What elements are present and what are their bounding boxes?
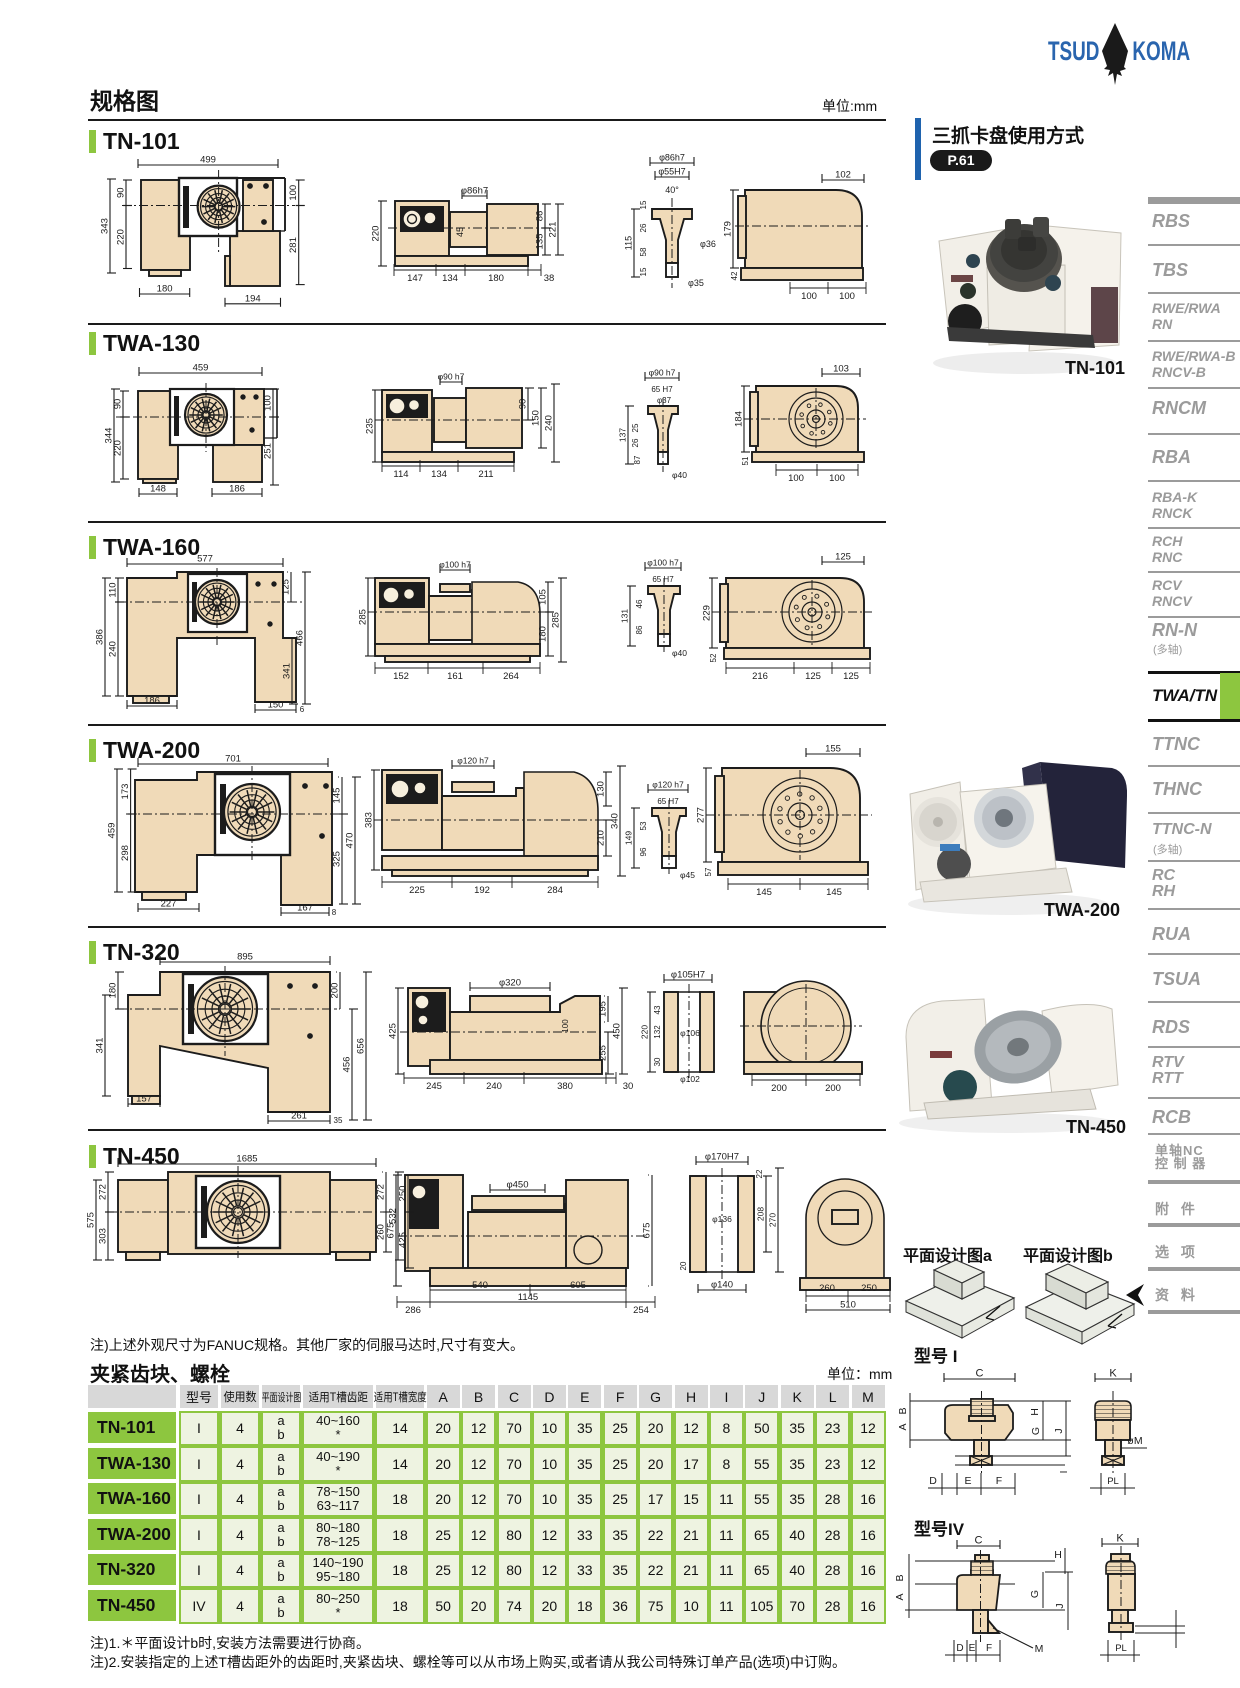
svg-text:261: 261 (291, 1111, 307, 1122)
svg-text:100: 100 (839, 291, 855, 302)
svg-text:PL: PL (1115, 1643, 1127, 1654)
svg-text:137: 137 (618, 428, 628, 442)
svg-text:φ90 h7: φ90 h7 (438, 372, 465, 382)
svg-text:90: 90 (113, 399, 124, 410)
svg-text:C: C (976, 1368, 984, 1380)
svg-text:57: 57 (704, 867, 713, 876)
svg-text:184: 184 (734, 411, 745, 427)
svg-text:38: 38 (544, 273, 555, 284)
svg-text:15: 15 (639, 200, 648, 209)
svg-text:277: 277 (696, 807, 707, 823)
svg-text:675: 675 (642, 1223, 653, 1239)
svg-text:A: A (895, 1593, 906, 1600)
svg-text:86: 86 (535, 211, 546, 222)
svg-text:φ140: φ140 (711, 1280, 733, 1291)
svg-text:895: 895 (237, 952, 253, 963)
svg-text:180: 180 (157, 284, 173, 295)
svg-text:110: 110 (108, 582, 119, 597)
svg-text:343: 343 (100, 218, 111, 234)
svg-text:F: F (986, 1643, 992, 1654)
svg-text:1685: 1685 (236, 1154, 257, 1165)
svg-text:194: 194 (245, 293, 261, 304)
svg-text:150: 150 (268, 700, 284, 711)
svg-text:D: D (929, 1475, 937, 1487)
svg-text:285: 285 (358, 609, 369, 625)
svg-text:281: 281 (288, 237, 299, 253)
svg-text:220: 220 (640, 1025, 650, 1039)
svg-text:605: 605 (570, 1280, 586, 1291)
svg-text:250: 250 (861, 1283, 877, 1294)
svg-text:220: 220 (113, 440, 124, 456)
svg-text:115: 115 (624, 236, 634, 250)
svg-text:φ37: φ37 (657, 396, 672, 405)
svg-text:240: 240 (544, 415, 555, 431)
svg-text:105: 105 (538, 589, 549, 605)
svg-text:H: H (1054, 1549, 1062, 1561)
svg-text:φ35: φ35 (688, 278, 704, 288)
svg-text:φ170H7: φ170H7 (705, 1152, 739, 1163)
svg-text:254: 254 (633, 1305, 649, 1316)
svg-text:130: 130 (596, 781, 607, 797)
svg-text:100: 100 (788, 473, 804, 484)
svg-text:216: 216 (752, 671, 768, 682)
svg-text:383: 383 (364, 812, 375, 828)
svg-text:167: 167 (297, 903, 313, 914)
svg-text:341: 341 (95, 1038, 106, 1054)
svg-text:φ55H7: φ55H7 (658, 167, 685, 177)
svg-text:148: 148 (150, 484, 166, 495)
svg-text:35: 35 (334, 1116, 343, 1125)
svg-text:I: I (1059, 1471, 1070, 1474)
svg-text:58: 58 (639, 247, 648, 256)
svg-text:456: 456 (342, 1057, 353, 1073)
svg-text:245: 245 (426, 1081, 442, 1092)
svg-text:220: 220 (371, 226, 382, 242)
svg-text:135: 135 (535, 234, 546, 250)
svg-text:K: K (1116, 1533, 1124, 1545)
svg-text:A: A (897, 1423, 909, 1430)
svg-text:240: 240 (486, 1081, 502, 1092)
svg-text:φ40: φ40 (672, 648, 687, 658)
svg-text:192: 192 (474, 885, 490, 896)
svg-text:114: 114 (393, 469, 408, 480)
svg-text:180: 180 (488, 273, 504, 284)
svg-text:195: 195 (598, 1001, 609, 1017)
svg-text:M: M (1035, 1643, 1044, 1655)
svg-text:46: 46 (635, 599, 644, 608)
svg-text:φ120 h7: φ120 h7 (457, 756, 489, 766)
svg-text:φ102: φ102 (680, 1074, 700, 1084)
svg-text:272: 272 (98, 1184, 109, 1200)
svg-text:65 H7: 65 H7 (657, 797, 679, 806)
svg-text:575: 575 (86, 1212, 97, 1228)
svg-text:φ320: φ320 (499, 978, 521, 989)
svg-text:210: 210 (596, 830, 607, 846)
svg-text:270: 270 (768, 1213, 778, 1227)
svg-text:255: 255 (598, 1045, 609, 1061)
svg-text:C: C (975, 1535, 983, 1547)
svg-text:PL: PL (1107, 1476, 1119, 1487)
svg-text:131: 131 (620, 609, 630, 623)
svg-text:43: 43 (653, 1005, 662, 1014)
svg-text:125: 125 (835, 552, 851, 563)
svg-text:150: 150 (531, 410, 542, 426)
svg-text:20: 20 (679, 1261, 688, 1270)
svg-text:26: 26 (639, 223, 648, 232)
svg-text:1145: 1145 (518, 1292, 538, 1303)
svg-text:F: F (996, 1475, 1002, 1487)
svg-text:51: 51 (741, 456, 750, 465)
svg-text:134: 134 (431, 469, 447, 480)
svg-text:φ45: φ45 (680, 870, 695, 880)
svg-text:øM: øM (1127, 1435, 1142, 1447)
svg-text:30: 30 (623, 1081, 634, 1092)
svg-text:341: 341 (282, 663, 293, 679)
svg-text:100: 100 (288, 185, 299, 201)
svg-text:200: 200 (330, 983, 341, 999)
svg-text:229: 229 (702, 605, 713, 621)
svg-text:H: H (1029, 1408, 1041, 1416)
svg-text:25: 25 (631, 423, 640, 432)
svg-text:125: 125 (843, 671, 859, 682)
svg-text:J: J (1053, 1428, 1065, 1433)
svg-text:235: 235 (365, 418, 376, 434)
svg-text:B: B (895, 1574, 906, 1581)
svg-text:285: 285 (551, 612, 562, 628)
svg-text:251: 251 (263, 443, 274, 459)
svg-text:145: 145 (332, 788, 343, 804)
svg-text:65 H7: 65 H7 (651, 385, 673, 394)
svg-text:425: 425 (398, 1232, 409, 1248)
svg-text:577: 577 (197, 554, 213, 565)
svg-text:470: 470 (345, 833, 356, 849)
svg-text:K: K (1109, 1368, 1117, 1380)
svg-text:208: 208 (756, 1207, 766, 1221)
svg-text:40°: 40° (665, 185, 679, 195)
svg-text:100: 100 (561, 1019, 570, 1033)
svg-text:675: 675 (386, 1223, 397, 1239)
svg-text:30: 30 (653, 1057, 662, 1066)
svg-text:152: 152 (393, 671, 409, 682)
svg-text:E: E (969, 1643, 976, 1654)
svg-text:186: 186 (144, 696, 160, 707)
svg-text:340: 340 (610, 813, 621, 829)
svg-text:100: 100 (801, 291, 817, 302)
svg-text:45: 45 (455, 227, 465, 237)
svg-text:E: E (964, 1475, 971, 1487)
svg-text:220: 220 (116, 229, 127, 245)
svg-text:125: 125 (805, 671, 821, 682)
svg-text:298: 298 (120, 845, 131, 861)
svg-text:157: 157 (136, 1094, 152, 1105)
svg-text:103: 103 (833, 364, 849, 375)
svg-text:90: 90 (518, 399, 529, 410)
svg-text:225: 225 (409, 885, 425, 896)
svg-text:656: 656 (356, 1038, 367, 1054)
svg-text:53: 53 (639, 821, 648, 830)
svg-text:240: 240 (108, 641, 119, 657)
svg-text:87: 87 (633, 455, 642, 464)
svg-text:6: 6 (300, 705, 305, 714)
svg-text:325: 325 (332, 851, 343, 867)
svg-text:510: 510 (840, 1300, 856, 1311)
svg-text:φ105H7: φ105H7 (671, 970, 705, 981)
svg-text:φ450: φ450 (506, 1180, 528, 1191)
svg-text:149: 149 (624, 831, 634, 845)
svg-text:380: 380 (557, 1081, 573, 1092)
svg-text:100: 100 (263, 395, 274, 411)
svg-text:386: 386 (95, 629, 106, 645)
svg-text:φ86h7: φ86h7 (461, 186, 488, 197)
svg-text:701: 701 (225, 754, 241, 765)
svg-text:180: 180 (108, 983, 119, 999)
svg-text:8: 8 (332, 908, 337, 917)
svg-text:425: 425 (388, 1023, 399, 1039)
svg-text:211: 211 (478, 469, 493, 480)
svg-text:179: 179 (723, 221, 734, 237)
svg-text:B: B (897, 1407, 909, 1414)
svg-text:φ100 h7: φ100 h7 (439, 560, 471, 570)
svg-text:145: 145 (826, 887, 842, 898)
svg-text:φ36: φ36 (700, 239, 716, 249)
svg-text:250: 250 (398, 1186, 409, 1202)
svg-text:26: 26 (631, 438, 640, 447)
svg-text:459: 459 (193, 363, 209, 374)
svg-text:286: 286 (405, 1305, 421, 1316)
svg-text:260: 260 (819, 1283, 835, 1294)
svg-text:540: 540 (472, 1280, 488, 1291)
svg-text:65 H7: 65 H7 (652, 575, 674, 584)
svg-text:90: 90 (116, 187, 127, 198)
svg-text:155: 155 (825, 744, 841, 755)
svg-text:145: 145 (756, 887, 772, 898)
svg-text:15: 15 (639, 267, 648, 276)
svg-text:86: 86 (635, 625, 644, 634)
svg-text:φ106: φ106 (680, 1028, 700, 1038)
svg-text:173: 173 (120, 784, 131, 800)
svg-text:D: D (956, 1643, 963, 1654)
svg-text:42: 42 (730, 271, 739, 280)
svg-text:200: 200 (771, 1083, 787, 1094)
svg-text:φ100 h7: φ100 h7 (647, 558, 679, 568)
svg-text:100: 100 (829, 473, 845, 484)
svg-text:284: 284 (547, 885, 563, 896)
svg-text:227: 227 (161, 899, 177, 910)
svg-text:125: 125 (281, 579, 292, 595)
svg-text:161: 161 (447, 671, 463, 682)
svg-text:52: 52 (709, 653, 718, 662)
svg-text:G: G (1029, 1590, 1041, 1598)
svg-text:303: 303 (98, 1228, 109, 1244)
svg-text:J: J (1054, 1603, 1066, 1608)
svg-text:132: 132 (653, 1025, 662, 1039)
svg-text:φ90 h7: φ90 h7 (649, 368, 676, 378)
svg-text:147: 147 (407, 273, 423, 284)
svg-text:264: 264 (503, 671, 519, 682)
svg-text:221: 221 (548, 222, 559, 238)
svg-text:532: 532 (388, 1208, 399, 1224)
svg-text:459: 459 (107, 823, 118, 839)
svg-text:G: G (1030, 1427, 1042, 1435)
svg-text:134: 134 (442, 273, 458, 284)
svg-text:φ120 h7: φ120 h7 (652, 780, 684, 790)
svg-text:22: 22 (755, 1169, 764, 1178)
svg-text:φ136: φ136 (712, 1214, 732, 1224)
svg-text:96: 96 (639, 847, 648, 856)
svg-text:499: 499 (200, 155, 216, 166)
svg-text:450: 450 (612, 1023, 623, 1039)
svg-text:102: 102 (835, 170, 851, 181)
svg-text:φ86h7: φ86h7 (659, 153, 685, 163)
svg-text:180: 180 (538, 626, 549, 642)
svg-text:φ40: φ40 (672, 470, 687, 480)
svg-text:186: 186 (229, 484, 245, 495)
svg-text:272: 272 (376, 1184, 387, 1200)
svg-text:200: 200 (825, 1083, 841, 1094)
